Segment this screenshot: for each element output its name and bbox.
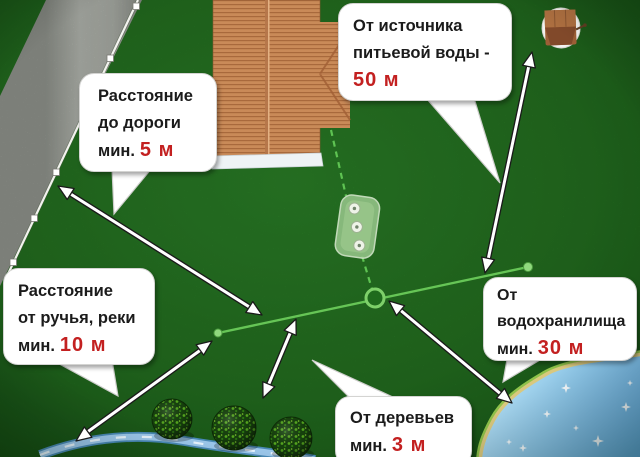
stream-distance-value: 10 м	[60, 334, 107, 356]
callout-stream-value-line: мин.10 м	[18, 332, 154, 360]
callout-road-value-line: мин.5 м	[98, 137, 216, 165]
callout-road-line2: до дороги	[98, 110, 216, 137]
callout-drinking-water: От источника питьевой воды - 50 м	[338, 3, 512, 101]
callout-drinking-water-value-line: 50 м	[353, 67, 511, 95]
callout-road: Расстояние до дороги мин.5 м	[79, 73, 217, 172]
septic-site-plan: Расстояние до дороги мин.5 м От источник…	[0, 0, 640, 457]
callout-reservoir-line2: водохранилища	[497, 309, 636, 335]
callout-stream-line1: Расстояние	[18, 278, 154, 305]
callout-stream: Расстояние от ручья, реки мин.10 м	[3, 268, 155, 365]
reservoir-distance-value: 30 м	[538, 337, 585, 359]
callout-drinking-water-line1: От источника	[353, 13, 511, 40]
trees-distance-value: 3 м	[392, 434, 426, 456]
callout-trees-value-line: мин.3 м	[350, 432, 471, 457]
callout-reservoir: От водохранилища мин.30 м	[483, 277, 637, 361]
callout-road-line1: Расстояние	[98, 83, 216, 110]
callout-reservoir-line1: От	[497, 283, 636, 309]
site-plan-scene	[0, 0, 640, 457]
drinking-water-distance-value: 50 м	[353, 69, 400, 91]
callout-drinking-water-line2: питьевой воды -	[353, 40, 511, 67]
callout-trees: От деревьев мин.3 м	[335, 396, 472, 457]
vignette	[0, 0, 640, 457]
road-distance-value: 5 м	[140, 139, 174, 161]
callout-reservoir-value-line: мин.30 м	[497, 335, 636, 363]
callout-stream-line2: от ручья, реки	[18, 305, 154, 332]
callout-trees-line1: От деревьев	[350, 405, 471, 432]
